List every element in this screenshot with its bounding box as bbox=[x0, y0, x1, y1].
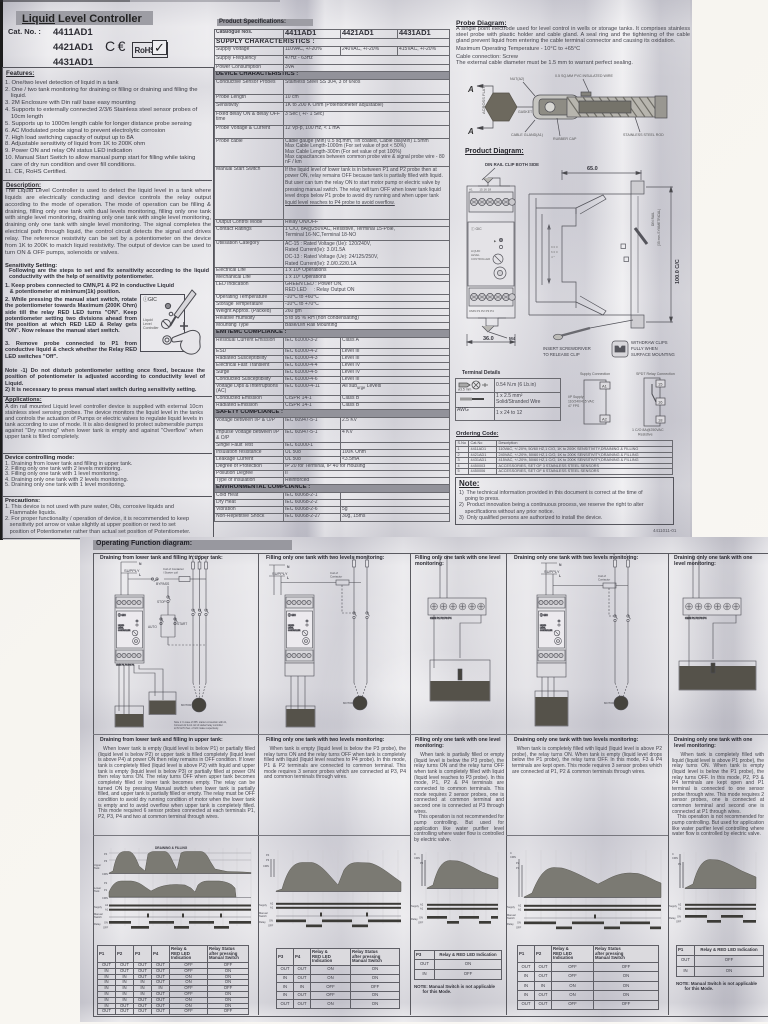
svg-text:ⓘ GIC: ⓘ GIC bbox=[471, 226, 482, 231]
svg-text:P3: P3 bbox=[104, 859, 108, 863]
svg-text:OFF: OFF bbox=[516, 926, 522, 930]
svg-text:CONTROLLER: CONTROLLER bbox=[471, 257, 490, 261]
svg-text:Switch: Switch bbox=[507, 916, 515, 920]
svg-text:A1: A1 bbox=[105, 908, 109, 912]
svg-text:SUPPLY: SUPPLY bbox=[544, 569, 560, 574]
svg-text:AUTO: AUTO bbox=[148, 625, 157, 629]
svg-text:47 FPS: 47 FPS bbox=[568, 404, 580, 408]
svg-text:CMN: CMN bbox=[102, 896, 108, 900]
svg-text:CMN P1 P2 P3 P4: CMN P1 P2 P3 P4 bbox=[469, 309, 494, 313]
svg-text:RUBBER CAP: RUBBER CAP bbox=[553, 137, 577, 141]
svg-text:Supply: Supply bbox=[507, 905, 516, 909]
svg-text:N: N bbox=[559, 563, 562, 567]
svg-text:MOTOR: MOTOR bbox=[604, 701, 614, 705]
svg-text:I/P Supply: I/P Supply bbox=[568, 395, 584, 399]
svg-text:Relay: Relay bbox=[94, 922, 101, 926]
svg-text:A1 15 16 18: A1 15 16 18 bbox=[469, 188, 491, 192]
svg-text:Relay: Relay bbox=[669, 916, 676, 920]
svg-text:WITHDRAW CLIPS: WITHDRAW CLIPS bbox=[631, 340, 668, 345]
svg-text:C: C bbox=[672, 852, 674, 856]
svg-text:DIN RAIL CLIP BOTH SIDE: DIN RAIL CLIP BOTH SIDE bbox=[485, 162, 539, 167]
svg-text:BYPASS: BYPASS bbox=[156, 582, 170, 586]
svg-text:Contactor: Contactor bbox=[330, 575, 342, 579]
svg-text:INSERT SCREWDRIVER: INSERT SCREWDRIVER bbox=[543, 346, 591, 351]
svg-text:Relay: Relay bbox=[507, 922, 514, 926]
svg-text:ACROSS FLAT: ACROSS FLAT bbox=[481, 86, 486, 114]
svg-text:OFF: OFF bbox=[268, 924, 274, 928]
svg-text:FULLY WHEN: FULLY WHEN bbox=[631, 346, 658, 351]
svg-text:ON: ON bbox=[269, 919, 273, 923]
svg-text:L1 L2 L3: L1 L2 L3 bbox=[189, 554, 201, 558]
svg-text:ON: ON bbox=[104, 921, 108, 925]
svg-text:CMN: CMN bbox=[510, 855, 516, 859]
svg-text:A: A bbox=[467, 85, 474, 94]
svg-text:P4: P4 bbox=[104, 852, 108, 856]
svg-text:A2: A2 bbox=[678, 903, 682, 907]
svg-text:L: L bbox=[559, 574, 561, 578]
svg-text:A2: A2 bbox=[420, 903, 424, 907]
svg-text:STAINLESS STEEL ROD: STAINLESS STEEL ROD bbox=[623, 133, 664, 137]
svg-text:A1: A1 bbox=[602, 384, 608, 389]
svg-text:P1: P1 bbox=[104, 888, 108, 892]
svg-text:MOTOR: MOTOR bbox=[343, 701, 353, 705]
svg-text:C: C bbox=[414, 852, 416, 856]
svg-text:DIN RAIL: DIN RAIL bbox=[651, 212, 655, 226]
svg-text:L: L bbox=[139, 573, 141, 577]
svg-text:Resistive: Resistive bbox=[638, 433, 653, 437]
svg-text:A1: A1 bbox=[678, 907, 682, 911]
svg-text:to P2 & P4 Sec. of GIC make re: to P2 & P4 Sec. of GIC make respectively… bbox=[174, 727, 219, 730]
svg-text:NUT(A2): NUT(A2) bbox=[510, 77, 524, 81]
svg-text:100.0 C/C: 100.0 C/C bbox=[675, 259, 681, 284]
svg-text:9 0 0: 9 0 0 bbox=[551, 245, 558, 249]
svg-text:L: L bbox=[287, 576, 289, 580]
svg-text:ON: ON bbox=[677, 915, 681, 919]
svg-text:CMN: CMN bbox=[414, 856, 420, 860]
svg-text:P4: P4 bbox=[266, 853, 270, 857]
svg-text:36.0: 36.0 bbox=[483, 336, 494, 342]
svg-text:A1: A1 bbox=[270, 906, 274, 910]
svg-text:TO RELEASE CLIP: TO RELEASE CLIP bbox=[543, 352, 580, 357]
svg-text:A1: A1 bbox=[518, 908, 522, 912]
svg-text:6 0 0: 6 0 0 bbox=[551, 250, 558, 254]
svg-text:N: N bbox=[613, 553, 615, 557]
svg-text:OFF: OFF bbox=[103, 926, 109, 930]
svg-text:SPDT Relay Connection: SPDT Relay Connection bbox=[636, 372, 675, 376]
svg-text:4 *: 4 * bbox=[551, 255, 556, 259]
svg-text:N: N bbox=[287, 565, 290, 569]
svg-text:Supply Connection: Supply Connection bbox=[580, 372, 610, 376]
svg-text:Relay: Relay bbox=[259, 920, 266, 924]
svg-text:ON: ON bbox=[419, 916, 423, 920]
svg-text:DRAINING & FILLING: DRAINING & FILLING bbox=[155, 846, 188, 850]
svg-text:Supply: Supply bbox=[411, 904, 420, 908]
svg-text:CMN: CMN bbox=[672, 856, 678, 860]
svg-text:MOTOR: MOTOR bbox=[181, 703, 191, 707]
svg-text:Supply: Supply bbox=[94, 905, 103, 909]
svg-text:P3: P3 bbox=[266, 858, 270, 862]
svg-text:OFF: OFF bbox=[418, 921, 424, 925]
svg-text:18: 18 bbox=[658, 418, 663, 423]
svg-text:0.5 SQ.MM PVC INSULATED WIRE: 0.5 SQ.MM PVC INSULATED WIRE bbox=[555, 74, 613, 78]
svg-text:A2: A2 bbox=[105, 903, 109, 907]
svg-text:ø3.5 mm: ø3.5 mm bbox=[458, 388, 472, 392]
svg-text:Tank: Tank bbox=[94, 866, 100, 870]
svg-text:Contactor: Contactor bbox=[598, 578, 610, 582]
svg-text:CMN: CMN bbox=[102, 872, 108, 876]
svg-text:C: C bbox=[510, 851, 512, 855]
svg-text:Switch: Switch bbox=[94, 915, 102, 919]
svg-text:CMN: CMN bbox=[263, 864, 269, 868]
svg-text:A: A bbox=[467, 127, 474, 136]
svg-text:OFF: OFF bbox=[676, 920, 682, 924]
svg-text:1 C/O 8A@250VAC: 1 C/O 8A@250VAC bbox=[632, 428, 664, 432]
svg-text:Relay: Relay bbox=[411, 917, 418, 921]
svg-text:Supply: Supply bbox=[259, 903, 268, 907]
svg-text:A2: A2 bbox=[270, 902, 274, 906]
svg-text:(35 mm-SYMMETRICAL): (35 mm-SYMMETRICAL) bbox=[657, 209, 661, 246]
svg-text:GASKET: GASKET bbox=[518, 110, 533, 114]
svg-text:START: START bbox=[177, 622, 187, 626]
svg-text:15: 15 bbox=[658, 382, 663, 387]
svg-text:P2: P2 bbox=[104, 881, 108, 885]
svg-text:SUPPLY: SUPPLY bbox=[124, 568, 140, 573]
svg-text:A1: A1 bbox=[420, 907, 424, 911]
svg-text:/ Starter coil: / Starter coil bbox=[163, 571, 178, 575]
svg-text:Supply: Supply bbox=[669, 904, 678, 908]
svg-text:STOP: STOP bbox=[157, 600, 166, 604]
svg-text:SURFACE MOUNTING: SURFACE MOUNTING bbox=[631, 352, 675, 357]
svg-text:110/240/415 VAC: 110/240/415 VAC bbox=[568, 400, 595, 404]
svg-text:A2: A2 bbox=[518, 904, 522, 908]
svg-text:16: 16 bbox=[658, 400, 663, 405]
svg-text:ON: ON bbox=[517, 921, 521, 925]
svg-text:A2: A2 bbox=[602, 417, 608, 422]
svg-text:Tank: Tank bbox=[94, 889, 100, 893]
svg-text:65.0: 65.0 bbox=[587, 166, 598, 172]
svg-text:CABLE GLAND(A1): CABLE GLAND(A1) bbox=[511, 133, 543, 137]
svg-text:N: N bbox=[139, 562, 142, 566]
svg-text:Switch: Switch bbox=[259, 914, 267, 918]
svg-text:SUPPLY: SUPPLY bbox=[272, 571, 288, 576]
